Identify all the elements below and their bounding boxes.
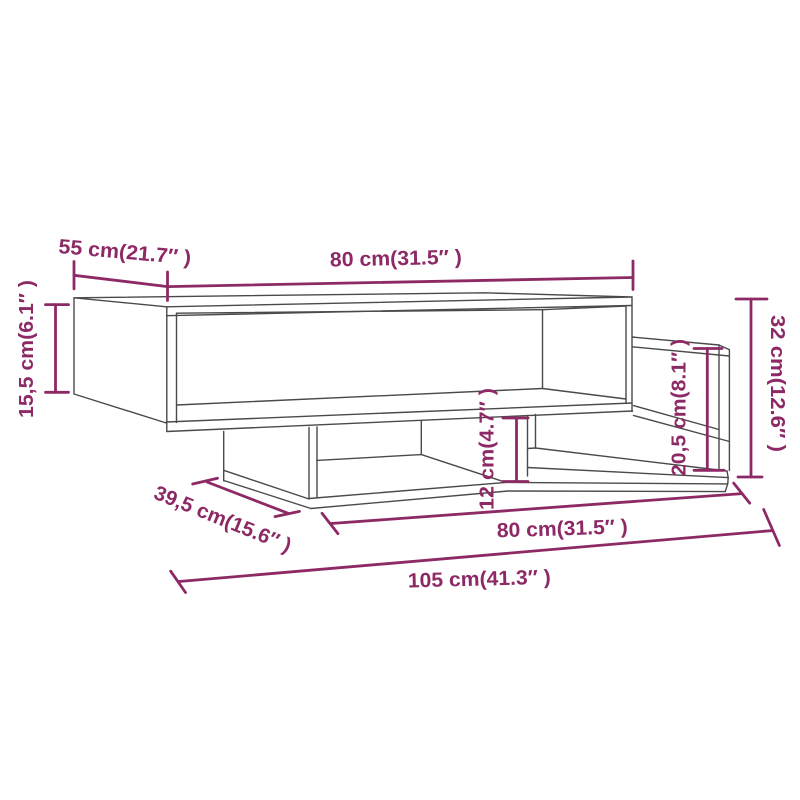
svg-text:20,5 cm(8.1″ ): 20,5 cm(8.1″ ) [668,339,691,476]
svg-text:80 cm(31.5″ ): 80 cm(31.5″ ) [330,246,462,272]
svg-text:15,5 cm(6.1″ ): 15,5 cm(6.1″ ) [15,280,38,418]
svg-text:80 cm(31.5″ ): 80 cm(31.5″ ) [496,515,628,542]
svg-text:105 cm(41.3″ ): 105 cm(41.3″ ) [408,566,552,593]
svg-text:12 cm(4.7″ ): 12 cm(4.7″ ) [476,388,499,510]
svg-text:32 cm(12.6″ ): 32 cm(12.6″ ) [766,315,789,452]
